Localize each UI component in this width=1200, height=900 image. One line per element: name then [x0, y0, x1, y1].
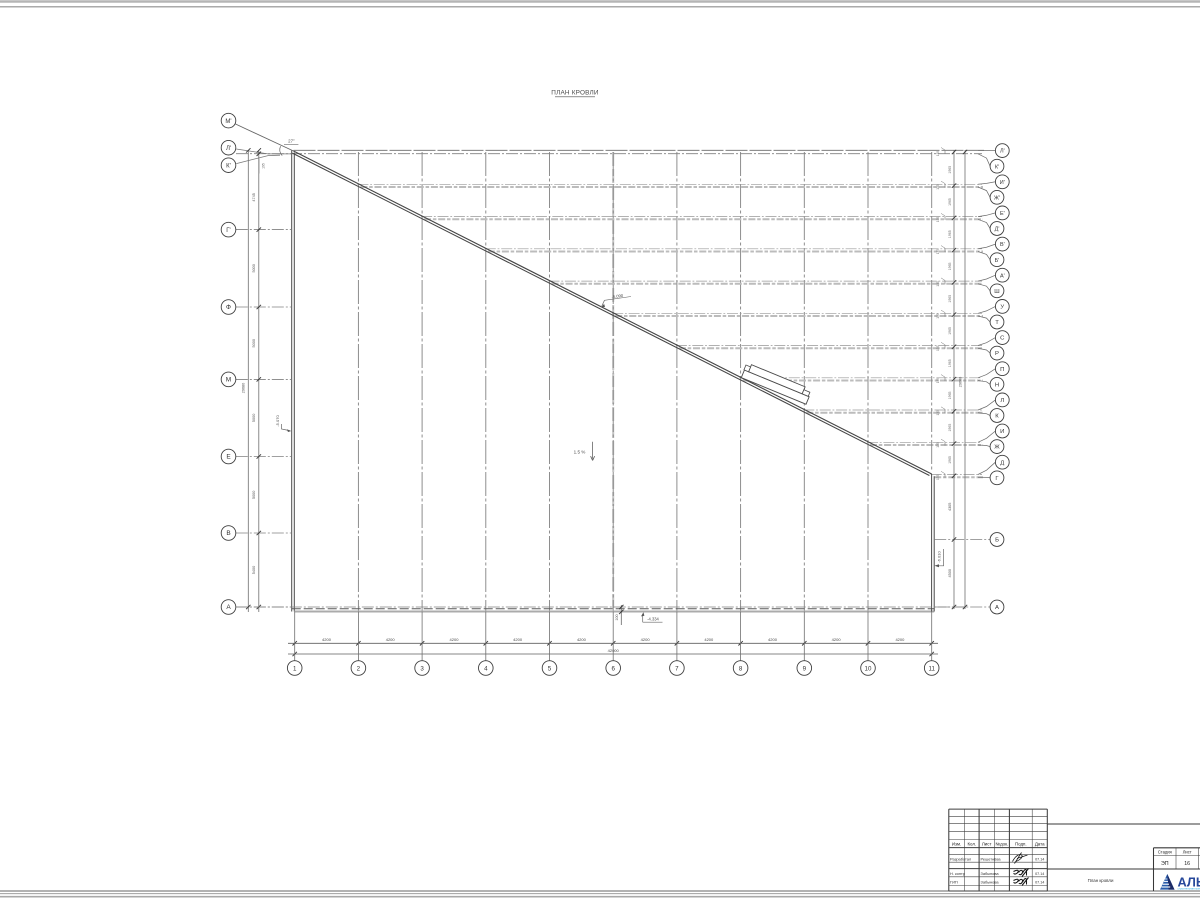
svg-text:Лист: Лист [1183, 849, 1192, 854]
svg-text:Подп.: Подп. [1015, 842, 1027, 847]
svg-text:Ж': Ж' [994, 195, 1000, 201]
svg-text:5000: 5000 [252, 491, 256, 499]
svg-text:Д': Д' [995, 227, 1000, 233]
svg-text:11: 11 [928, 665, 935, 672]
svg-text:195: 195 [261, 163, 265, 169]
svg-text:135: 135 [936, 217, 940, 223]
svg-text:А': А' [1000, 273, 1005, 279]
svg-text:5000: 5000 [252, 414, 256, 422]
svg-text:ЭП: ЭП [1161, 861, 1169, 867]
svg-text:К': К' [226, 163, 231, 169]
svg-text:П: П [1000, 367, 1004, 373]
svg-text:135: 135 [936, 151, 940, 157]
svg-text:135: 135 [936, 474, 940, 480]
svg-text:6: 6 [611, 665, 615, 672]
svg-text:1965: 1965 [948, 327, 952, 335]
svg-text:5000: 5000 [252, 339, 256, 347]
svg-text:С: С [1000, 336, 1005, 342]
svg-text:4200: 4200 [450, 637, 460, 642]
svg-text:10: 10 [865, 665, 872, 672]
svg-text:1965: 1965 [948, 262, 952, 270]
svg-text:2: 2 [357, 665, 361, 672]
svg-text:Кол.: Кол. [967, 842, 976, 847]
svg-text:1965: 1965 [948, 391, 952, 399]
svg-text:135: 135 [936, 281, 940, 287]
svg-text:07.14: 07.14 [1035, 858, 1044, 862]
svg-text:Л: Л [1000, 398, 1004, 404]
svg-text:Д: Д [1000, 460, 1004, 466]
svg-text:В': В' [1000, 242, 1005, 248]
svg-text:5000: 5000 [252, 264, 256, 272]
svg-text:У: У [1000, 305, 1004, 311]
svg-text:И': И' [1000, 180, 1005, 186]
svg-text:Т: Т [995, 320, 999, 326]
svg-text:Б': Б' [995, 258, 1000, 264]
svg-text:№док.: №док. [995, 842, 1008, 847]
svg-text:Е': Е' [1000, 211, 1005, 217]
svg-text:Ф: Ф [226, 304, 231, 311]
svg-text:Е: Е [226, 454, 231, 461]
svg-text:1965: 1965 [948, 295, 952, 303]
svg-text:Забынова: Забынова [981, 871, 1000, 876]
svg-text:К: К [995, 414, 999, 420]
svg-text:1965: 1965 [948, 424, 952, 432]
svg-text:Разработал: Разработал [950, 857, 971, 862]
svg-text:строительная компания: строительная компания [1178, 888, 1200, 891]
svg-text:5: 5 [548, 665, 552, 672]
svg-text:3: 3 [420, 665, 424, 672]
svg-text:4200: 4200 [832, 637, 842, 642]
svg-text:Л': Л' [226, 146, 231, 152]
svg-text:4745: 4745 [252, 193, 256, 201]
svg-text:1.5 %: 1.5 % [574, 449, 586, 454]
svg-text:В: В [226, 530, 230, 537]
svg-text:7: 7 [675, 665, 679, 672]
svg-text:-6.010: -6.010 [937, 551, 942, 563]
svg-text:4305: 4305 [948, 503, 952, 511]
svg-text:Ж: Ж [994, 445, 1000, 451]
svg-text:135: 135 [936, 249, 940, 255]
svg-text:1965: 1965 [948, 359, 952, 367]
svg-text:4200: 4200 [577, 637, 587, 642]
svg-text:4200: 4200 [513, 637, 523, 642]
svg-text:135: 135 [936, 345, 940, 351]
svg-text:Забынова: Забынова [981, 879, 1000, 884]
svg-text:135: 135 [936, 184, 940, 190]
svg-text:Изм.: Изм. [952, 842, 961, 847]
svg-text:Решетнёва: Решетнёва [981, 857, 1002, 862]
svg-text:135: 135 [936, 313, 940, 319]
svg-text:-5.070: -5.070 [275, 415, 280, 427]
svg-text:4200: 4200 [895, 637, 905, 642]
svg-text:07.14: 07.14 [1035, 872, 1044, 876]
svg-text:16: 16 [1184, 861, 1190, 867]
svg-text:135: 135 [936, 378, 940, 384]
svg-text:4: 4 [484, 665, 488, 672]
svg-text:План кровли: План кровли [1088, 878, 1114, 883]
svg-text:1965: 1965 [948, 230, 952, 238]
svg-text:07.14: 07.14 [1035, 880, 1044, 884]
svg-text:1: 1 [293, 665, 297, 672]
svg-text:Л': Л' [1000, 149, 1005, 155]
svg-text:Дата: Дата [1035, 842, 1045, 847]
svg-text:9: 9 [803, 665, 807, 672]
svg-text:К': К' [995, 164, 999, 170]
svg-text:4200: 4200 [322, 637, 332, 642]
svg-text:Ш: Ш [994, 289, 999, 295]
svg-text:М: М [226, 377, 231, 384]
svg-text:А: А [226, 604, 231, 611]
svg-text:29680: 29680 [958, 377, 962, 388]
svg-text:29680: 29680 [241, 383, 245, 394]
svg-text:5400: 5400 [252, 566, 256, 574]
svg-text:135: 135 [936, 410, 940, 416]
svg-text:4200: 4200 [386, 637, 396, 642]
svg-text:1965: 1965 [948, 198, 952, 206]
svg-text:Р: Р [995, 351, 999, 357]
svg-text:1965: 1965 [948, 166, 952, 174]
svg-text:135: 135 [936, 442, 940, 448]
svg-text:А: А [995, 605, 999, 611]
svg-text:Г': Г' [226, 228, 230, 234]
svg-text:Стадия: Стадия [1158, 849, 1172, 854]
svg-text:ПЛАН КРОВЛИ: ПЛАН КРОВЛИ [551, 89, 599, 96]
svg-text:ГИП: ГИП [950, 879, 958, 884]
svg-text:8: 8 [739, 665, 743, 672]
svg-text:27°: 27° [288, 139, 295, 144]
svg-text:4200: 4200 [641, 637, 651, 642]
svg-text:1965: 1965 [948, 456, 952, 464]
svg-text:М': М' [225, 119, 231, 125]
svg-text:-4.334: -4.334 [647, 617, 659, 622]
svg-text:Б: Б [995, 538, 999, 544]
svg-text:100: 100 [615, 614, 619, 620]
svg-text:4200: 4200 [768, 637, 778, 642]
svg-text:И: И [1000, 429, 1004, 435]
svg-text:4200: 4200 [704, 637, 714, 642]
svg-text:4500: 4500 [948, 569, 952, 577]
svg-text:Н: Н [995, 382, 999, 388]
svg-text:Н. контр: Н. контр [950, 871, 965, 876]
svg-text:Лист: Лист [982, 842, 992, 847]
